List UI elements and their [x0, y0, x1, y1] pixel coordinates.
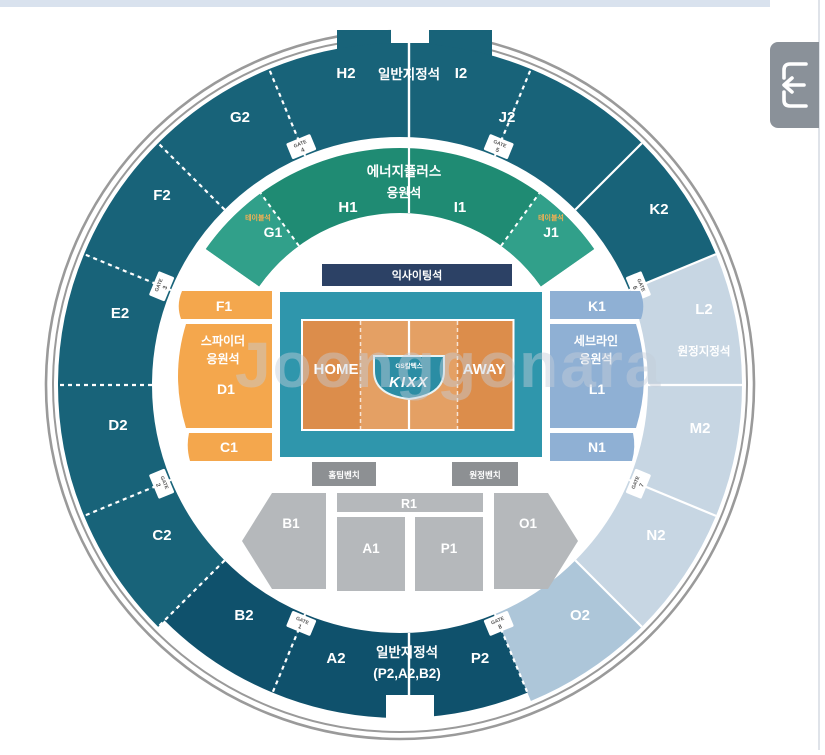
- top-notch: [391, 26, 429, 43]
- section-label-R1: R1: [401, 497, 417, 511]
- exciting-seat-label: 익사이팅석: [392, 268, 443, 282]
- section-label-L2: L2: [695, 301, 713, 318]
- section-label-L1: L1: [589, 381, 606, 397]
- section-label-K2: K2: [649, 201, 668, 218]
- away-bench-label: 원정벤치: [469, 470, 500, 480]
- section-label-G2: G2: [230, 109, 250, 126]
- section-B1[interactable]: [242, 493, 326, 589]
- table-seat-mini-label-left: 테이블석: [245, 213, 271, 222]
- general-seats-sections-note: (P2,A2,B2): [373, 666, 441, 681]
- general-seats-label-top: 일반지정석: [378, 66, 440, 82]
- section-label-N2: N2: [646, 527, 665, 544]
- section-label-D1: D1: [217, 381, 235, 397]
- section-label-H2: H2: [336, 65, 355, 82]
- section-label-B1: B1: [282, 516, 300, 531]
- section-label-F1: F1: [216, 298, 233, 314]
- section-label-P1: P1: [441, 541, 458, 556]
- away-label: AWAY: [463, 361, 506, 378]
- arena-seat-chart: I2J2K2L2M2N2O2P2A2B2C2D2E2F2G2H2일반지정석일반지…: [0, 0, 825, 750]
- bottom-notch: [386, 695, 434, 719]
- serveline-cheer-label: 세브라인: [574, 333, 618, 348]
- section-label-J2: J2: [499, 109, 516, 126]
- collapse-panel-button[interactable]: [770, 42, 819, 128]
- section-label-O2: O2: [570, 607, 590, 624]
- home-label: HOME: [314, 361, 359, 378]
- kixx-logo-text: KIXX: [389, 375, 429, 391]
- section-label-G1: G1: [264, 224, 283, 240]
- section-label-C1: C1: [220, 439, 238, 455]
- section-label-P2: P2: [471, 650, 489, 667]
- section-label-A2: A2: [326, 650, 345, 667]
- general-seats-label-bottom: 일반지정석: [376, 644, 438, 660]
- section-label-I2: I2: [455, 65, 468, 82]
- serveline-cheer-sub-label: 응원석: [579, 351, 612, 366]
- section-label-M2: M2: [690, 420, 711, 437]
- section-label-N1: N1: [588, 439, 606, 455]
- section-label-C2: C2: [152, 527, 171, 544]
- energy-plus-sub-label: 응원석: [387, 185, 422, 200]
- section-label-K1: K1: [588, 298, 606, 314]
- kixx-logo-small-text: GS칼텍스: [395, 361, 422, 370]
- section-label-J1: J1: [543, 224, 559, 240]
- top-strip: [0, 0, 770, 7]
- arrow-left-into-bracket-icon: [778, 59, 812, 111]
- section-label-I1: I1: [454, 199, 467, 216]
- section-label-A1: A1: [362, 541, 380, 556]
- section-label-F2: F2: [153, 187, 171, 204]
- section-label-B2: B2: [234, 607, 253, 624]
- section-label-O1: O1: [519, 516, 538, 531]
- spider-cheer-label: 스파이더: [201, 333, 245, 348]
- energy-plus-label: 에너지플러스: [367, 164, 442, 179]
- section-label-E2: E2: [111, 305, 129, 322]
- section-label-H1: H1: [338, 199, 357, 216]
- home-bench-label: 홈팀벤치: [328, 470, 359, 480]
- away-seats-label: 원정지정석: [678, 344, 731, 358]
- spider-cheer-sub-label: 응원석: [206, 351, 239, 366]
- section-label-D2: D2: [108, 417, 127, 434]
- table-seat-mini-label-right: 테이블석: [538, 213, 564, 222]
- seat-map: I2J2K2L2M2N2O2P2A2B2C2D2E2F2G2H2일반지정석일반지…: [0, 0, 825, 750]
